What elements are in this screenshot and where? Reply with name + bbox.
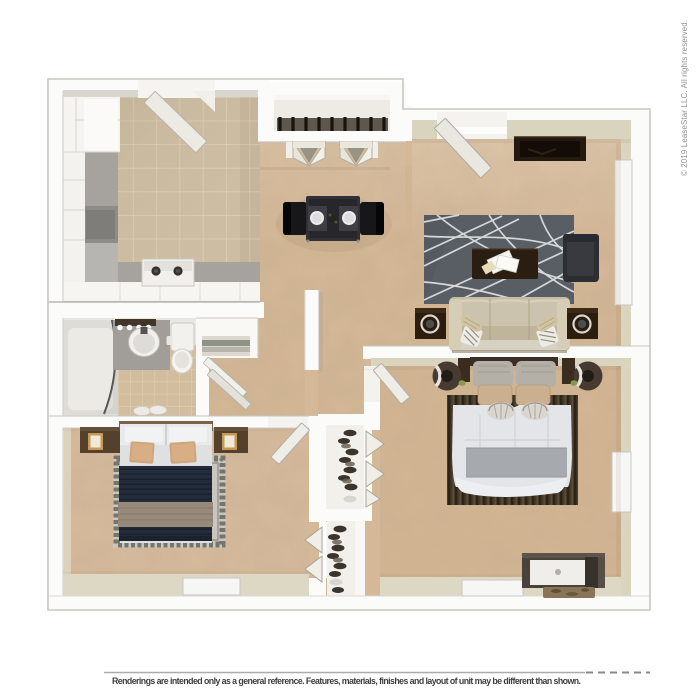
svg-text:Renderings are intended only a: Renderings are intended only as a genera… (112, 676, 581, 686)
svg-text:© 2019 LeaseStar LLC. All righ: © 2019 LeaseStar LLC. All rights reserve… (680, 20, 689, 176)
